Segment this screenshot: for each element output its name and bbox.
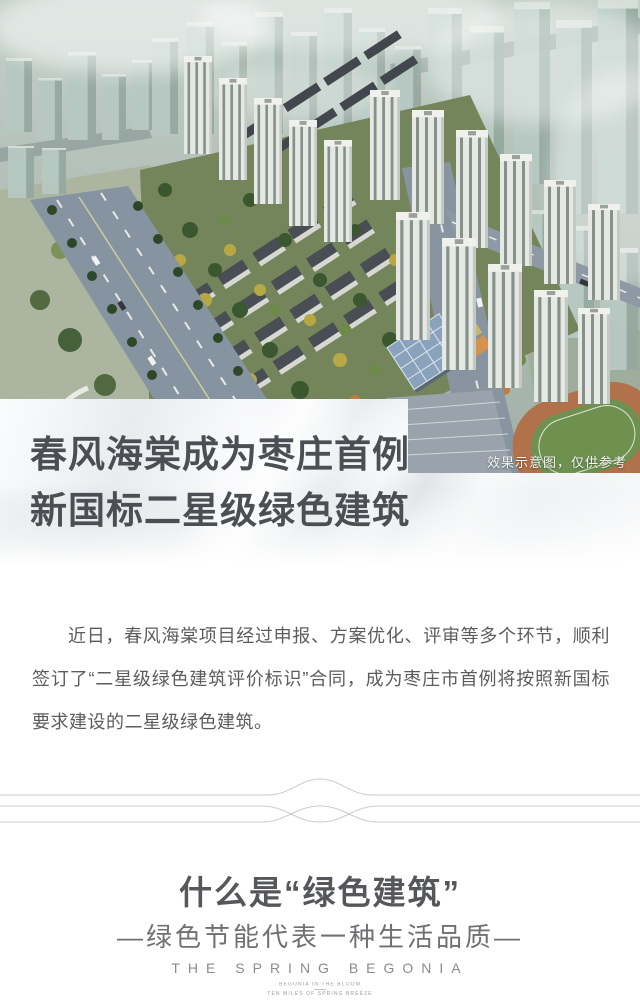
footer-mini-divider	[314, 989, 326, 990]
footer-logo: THE SPRING BEGONIA BEGONIA IN THE BLOOM …	[0, 960, 640, 1003]
footer-tagline-line2: TEN MILES OF SPRING BREEZE	[90, 991, 551, 997]
hero-caption: 效果示意图，仅供参考	[487, 452, 627, 471]
hero-section: 春风海棠成为枣庄首例 新国标二星级绿色建筑 效果示意图，仅供参考	[0, 0, 640, 575]
footer-tagline-line1: BEGONIA IN THE BLOOM	[90, 982, 551, 988]
section-subtitle: —绿色节能代表一种生活品质—	[0, 917, 640, 954]
article-paragraph: 近日，春风海棠项目经过申报、方案优化、评审等多个环节，顺利签订了“二星级绿色建筑…	[32, 615, 610, 744]
section-title: 什么是“绿色建筑”	[0, 866, 640, 914]
footer-tagline: BEGONIA IN THE BLOOM TEN MILES OF SPRING…	[90, 982, 551, 997]
section-divider	[0, 770, 640, 840]
article-page: 春风海棠成为枣庄首例 新国标二星级绿色建筑 效果示意图，仅供参考 近日，春风海棠…	[0, 0, 640, 1005]
hero-headline: 春风海棠成为枣庄首例 新国标二星级绿色建筑	[30, 428, 450, 540]
hero-headline-line2: 新国标二星级绿色建筑	[30, 484, 450, 540]
footer-brand: THE SPRING BEGONIA	[0, 960, 640, 976]
hero-headline-line1: 春风海棠成为枣庄首例	[30, 428, 450, 484]
